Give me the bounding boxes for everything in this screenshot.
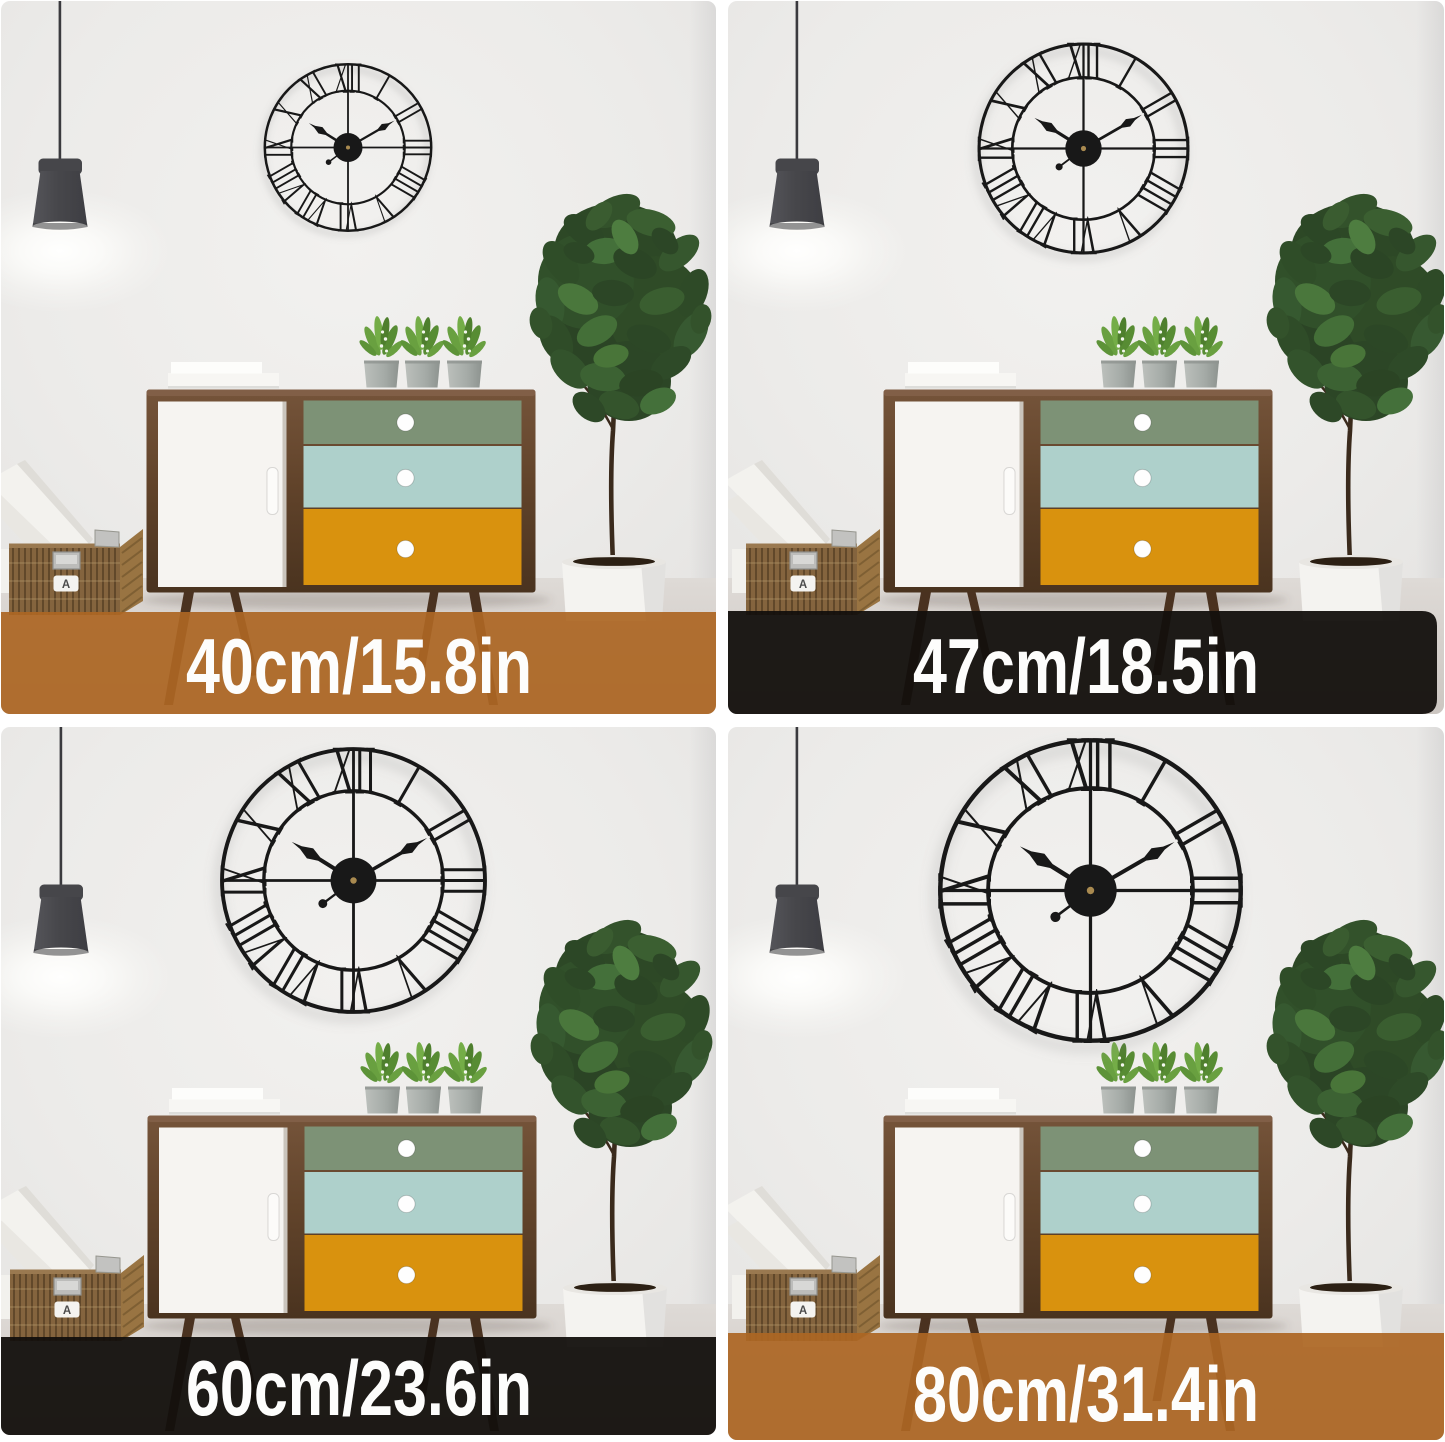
svg-text:III: III bbox=[393, 137, 442, 157]
svg-text:III: III bbox=[425, 864, 503, 896]
svg-text:A: A bbox=[799, 579, 807, 591]
svg-text:XII: XII bbox=[334, 54, 362, 103]
svg-text:A: A bbox=[799, 1305, 807, 1317]
svg-text:47cm/18.5in: 47cm/18.5in bbox=[913, 622, 1259, 710]
svg-text:60cm/23.6in: 60cm/23.6in bbox=[186, 1344, 532, 1432]
svg-text:XII: XII bbox=[331, 731, 376, 809]
svg-text:IX: IX bbox=[204, 863, 282, 897]
svg-text:III: III bbox=[1172, 872, 1261, 909]
svg-text:XII: XII bbox=[1065, 720, 1116, 809]
svg-text:XII: XII bbox=[1066, 31, 1102, 93]
svg-text:VI: VI bbox=[337, 192, 359, 241]
svg-text:A: A bbox=[63, 1305, 71, 1317]
svg-text:A: A bbox=[62, 579, 70, 591]
svg-text:VI: VI bbox=[1070, 205, 1097, 267]
svg-text:IX: IX bbox=[920, 871, 1009, 910]
svg-text:40cm/15.8in: 40cm/15.8in bbox=[186, 622, 532, 710]
svg-text:III: III bbox=[1140, 136, 1202, 162]
svg-text:VI: VI bbox=[1071, 972, 1110, 1061]
svg-text:IX: IX bbox=[966, 135, 1028, 162]
svg-text:VI: VI bbox=[336, 952, 370, 1030]
svg-text:80cm/31.4in: 80cm/31.4in bbox=[913, 1350, 1259, 1438]
svg-text:IX: IX bbox=[254, 137, 303, 159]
